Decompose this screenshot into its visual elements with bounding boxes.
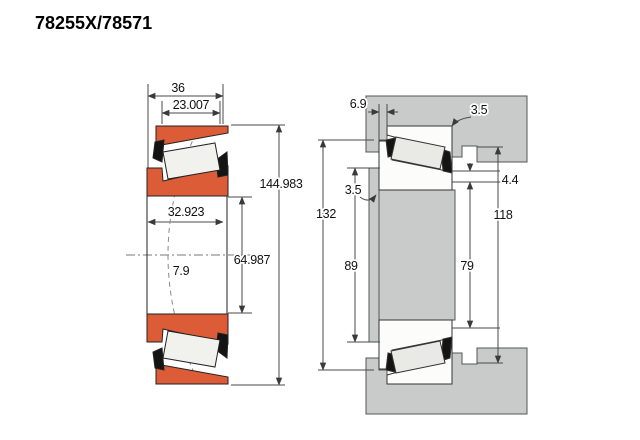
dim-shaft-shoulder-diameter: 89 (344, 259, 358, 273)
mounted-bearing-upper (379, 126, 452, 190)
part-number-title: 78255X/78571 (35, 13, 152, 33)
dim-housing-fillet: 3.5 (471, 103, 488, 117)
technical-drawing: 78255X/78571 (0, 0, 640, 440)
dim-housing-face-diameter: 132 (316, 207, 336, 221)
right-view-mounting: 6.9 3.5 3.5 132 89 79 118 4.4 (316, 96, 527, 414)
dim-cup-width: 23.007 (173, 98, 210, 112)
dim-shaft-fillet: 3.5 (345, 183, 362, 197)
cage-upper-left (153, 140, 164, 162)
left-view-cross-section: 36 23.007 144.983 32.923 64.987 7.9 (126, 81, 303, 385)
bearing-section-lower (147, 314, 228, 384)
dim-housing-shoulder-diameter: 118 (493, 208, 512, 222)
dim-cone-width: 32.923 (168, 205, 205, 219)
shaft-shoulder (369, 168, 379, 342)
shaft (379, 190, 455, 320)
dim-shoulder-clearance: 4.4 (502, 173, 519, 187)
dim-load-center: 7.9 (173, 264, 190, 278)
dim-cone-rib-diameter: 79 (460, 259, 474, 273)
cup-lower (156, 364, 228, 384)
dim-outer-diameter: 144.983 (259, 177, 302, 191)
mounted-bearing-lower (379, 320, 452, 384)
bearing-section-upper (147, 126, 228, 196)
dim-backface-standout: 6.9 (350, 97, 367, 111)
dim-bore-diameter: 64.987 (234, 253, 271, 267)
dim-overall-width: 36 (171, 81, 185, 95)
bearing-datasheet-figure: 78255X/78571 (0, 0, 640, 440)
cage-lower-left (153, 348, 164, 370)
